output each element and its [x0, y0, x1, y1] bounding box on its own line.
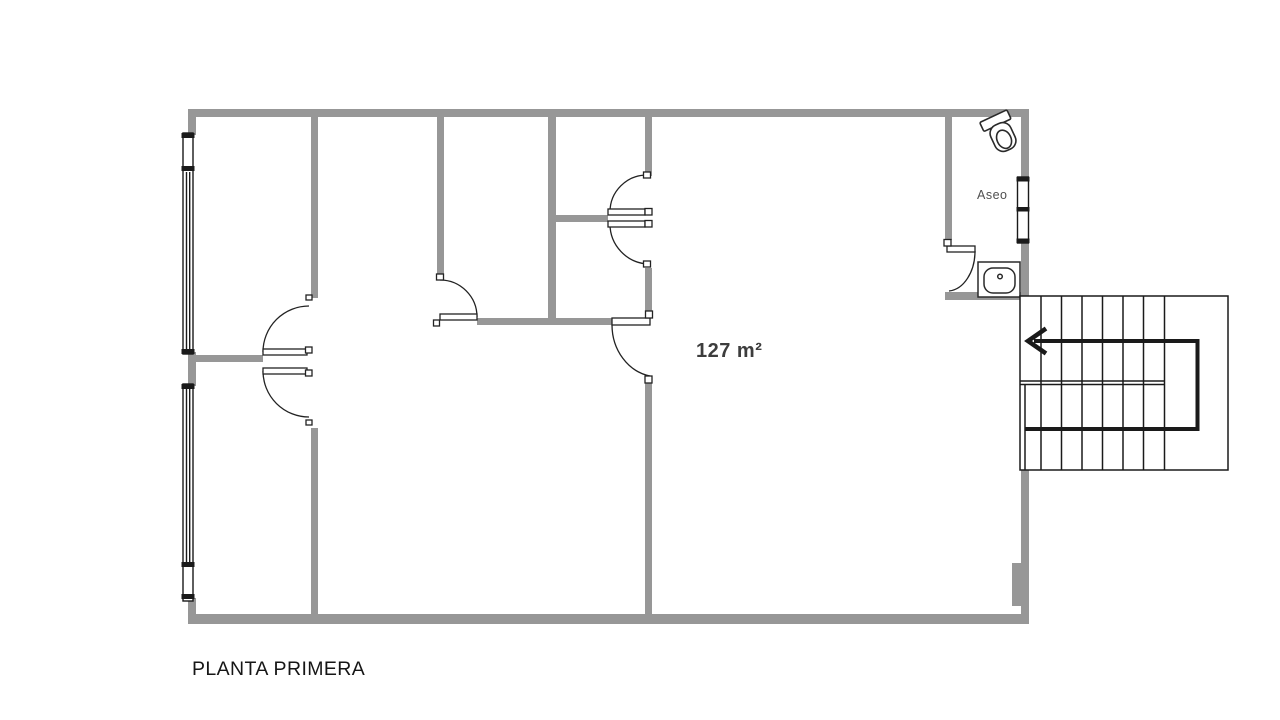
door-hinge [306, 295, 312, 300]
corridor-door [434, 274, 478, 326]
door-leaf [263, 368, 307, 374]
wall-v1-upper [311, 109, 318, 298]
sink-basin [984, 268, 1015, 293]
door-arc [612, 325, 650, 376]
window-cap [182, 562, 195, 567]
door-hinge [306, 370, 313, 376]
window-cap [182, 594, 195, 599]
door-leaf [440, 314, 477, 320]
door-arc [610, 224, 648, 264]
wall-h2 [548, 215, 608, 222]
wall-v4-a [645, 109, 652, 176]
door-hinge [434, 320, 440, 326]
area-label: 127 m² [696, 340, 762, 363]
door-hinge [645, 376, 652, 383]
staircase [1020, 296, 1228, 470]
right-wall-window [1017, 177, 1030, 243]
window-cap [1017, 207, 1030, 212]
wall-left-seg [188, 598, 196, 624]
window-cap [182, 349, 195, 354]
floor-plan-page: Aseo 127 m² PLANTA PRIMERA [0, 0, 1280, 720]
door-arc [263, 371, 309, 417]
closet-door-upper [608, 172, 652, 215]
door-leaf [612, 318, 650, 325]
door-arc [949, 251, 975, 291]
wall-v4-c [645, 382, 652, 616]
door-hinge [644, 172, 651, 178]
closet-door-lower [608, 221, 652, 268]
door-arc [263, 306, 309, 352]
door-hinge [306, 420, 312, 425]
floor-plan-drawing [0, 0, 1280, 720]
wall-h1 [192, 355, 263, 362]
wall-right-seg [1021, 109, 1029, 177]
door-hinge [437, 274, 444, 280]
window-cap [1017, 239, 1030, 244]
wall-v2 [437, 109, 444, 274]
wall-h3 [477, 318, 612, 325]
door-arc [610, 175, 647, 212]
window-cap [182, 384, 195, 389]
sink-faucet [998, 274, 1003, 279]
window-cap [182, 166, 195, 171]
window-cap [182, 133, 195, 138]
wall-left-seg [188, 109, 196, 135]
door-hinge [644, 261, 651, 267]
door-hinge [645, 209, 652, 216]
door-hinge [944, 240, 951, 247]
wall-aseo-left [945, 109, 952, 240]
bathroom-door [944, 240, 975, 292]
door-leaf [947, 246, 975, 252]
interior-walls [192, 109, 1029, 616]
wall-right-seg [1021, 243, 1029, 300]
wall-v4-b [645, 268, 652, 314]
sink-icon [978, 262, 1020, 297]
door-leaf [608, 209, 645, 215]
page-title: PLANTA PRIMERA [192, 658, 365, 681]
wall-v1-lower [311, 428, 318, 616]
door-leaf [263, 349, 307, 355]
door-hinge [645, 221, 652, 228]
center-room-door [612, 311, 653, 383]
door-arc [440, 280, 477, 317]
door-hinge [306, 347, 313, 353]
window-cap [1017, 177, 1030, 182]
wall-pilaster [1012, 563, 1029, 606]
door-leaf [608, 221, 645, 227]
door-hinge [646, 311, 653, 318]
double-swing-door-left [263, 295, 312, 425]
room-label-aseo: Aseo [977, 188, 1008, 202]
window-frame [183, 384, 193, 601]
